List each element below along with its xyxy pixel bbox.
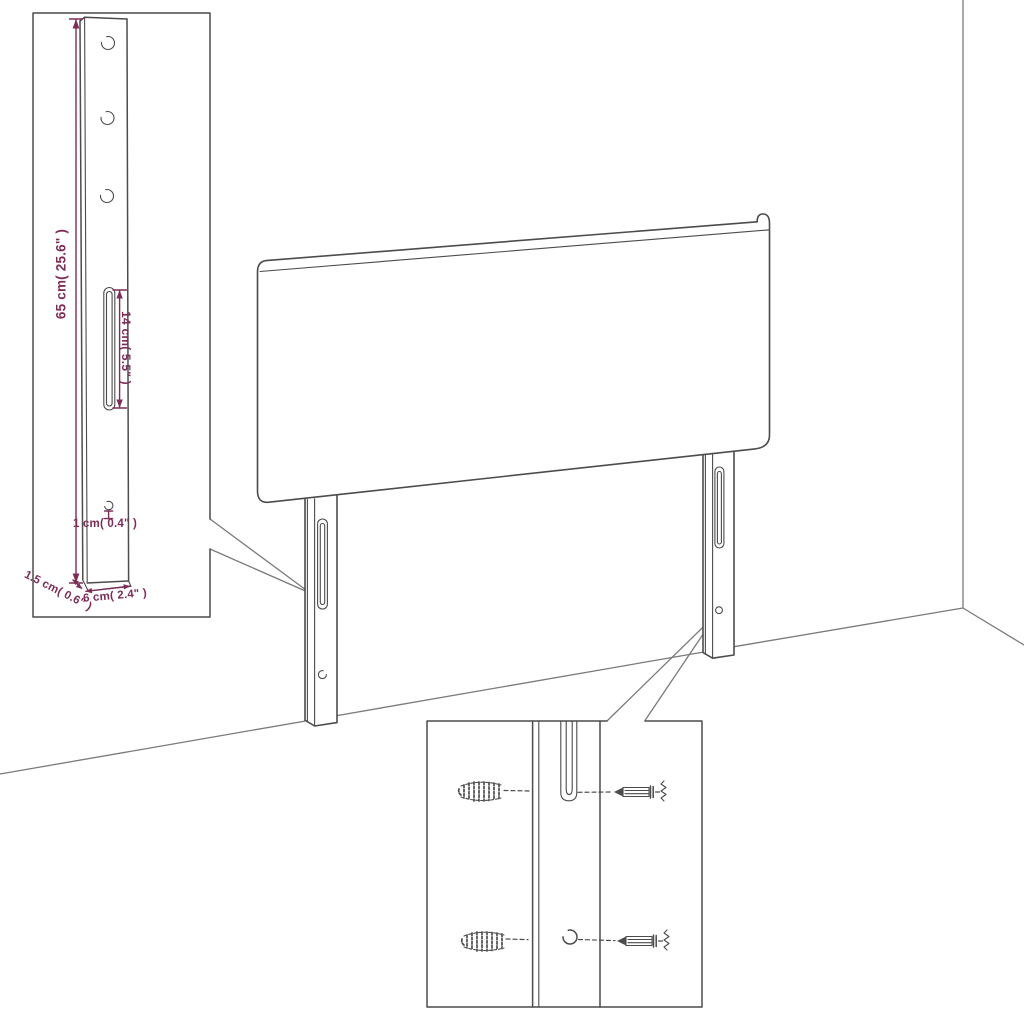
wall-plug-icon — [459, 782, 501, 801]
leader-lines — [504, 791, 615, 941]
dimension-line-depth — [72, 579, 82, 589]
headboard-panel — [258, 214, 770, 502]
leg-detail-holes — [101, 37, 115, 203]
mounting-detail-inset-border — [427, 721, 702, 1007]
callout-lines-left-inset — [210, 519, 307, 592]
leg-detail-slot — [104, 288, 115, 411]
mounting-keyhole-slot — [561, 721, 577, 801]
screw-icon — [614, 781, 666, 801]
headboard-left-leg — [305, 495, 337, 726]
mounting-detail-inset — [427, 721, 702, 1007]
headboard-right-leg — [703, 451, 734, 658]
dim-label-slot-length: 14 cm( 5.5" ) — [119, 311, 133, 385]
wall-plug-icon — [462, 932, 504, 951]
diagram-canvas: 65 cm( 25.6" ) 14 cm( 5.5" ) 1 cm( 0.4" … — [0, 0, 1024, 1024]
mounting-screw-hole — [563, 930, 577, 944]
line-art — [0, 0, 1024, 1024]
screw-icon — [617, 930, 669, 950]
leg-detail-leg — [80, 17, 131, 591]
dim-label-height: 65 cm( 25.6" ) — [54, 229, 69, 319]
callout-lines-bottom-inset — [608, 614, 718, 721]
leg-detail-small-hole — [105, 501, 113, 509]
dim-label-hole: 1 cm( 0.4" ) — [73, 518, 137, 530]
